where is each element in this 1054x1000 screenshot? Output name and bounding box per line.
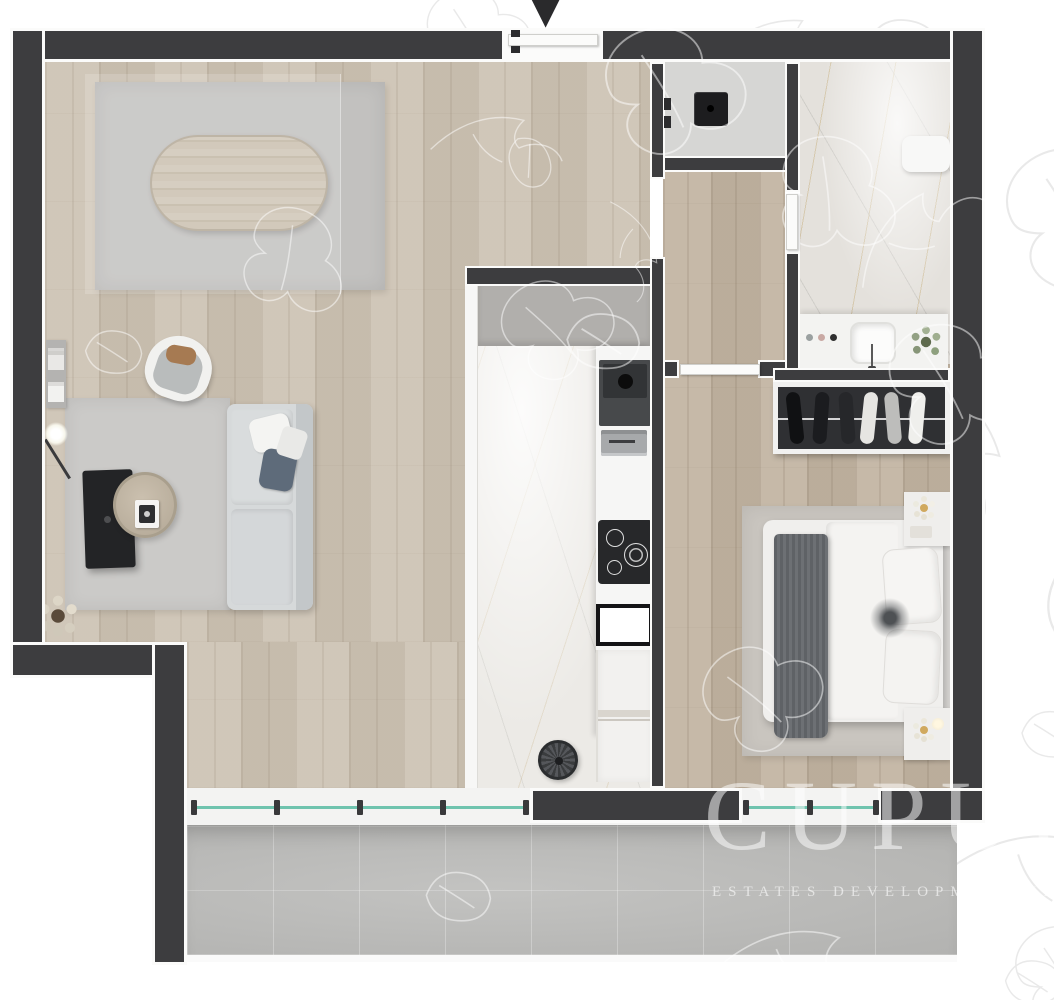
kitchen-partition — [465, 284, 478, 788]
wall-wardrobe-top — [773, 368, 950, 382]
nightstand — [904, 708, 950, 760]
wall-kitchen-top — [465, 266, 657, 286]
bath-plant — [910, 326, 942, 358]
hanging-clothes — [812, 392, 830, 445]
shower-control — [830, 334, 837, 341]
hanging-clothes — [908, 391, 926, 444]
bedroom-door — [680, 364, 760, 375]
hallway-floor — [663, 172, 785, 364]
entry-door — [508, 34, 598, 46]
shower-control — [818, 334, 825, 341]
wardrobe — [773, 382, 950, 454]
floor-plan: ▼ CUPUI ESTATES DEVELOPMENT IN — [0, 0, 1054, 1000]
coffee-machine — [601, 430, 647, 456]
kitchen-upper-cabinets — [478, 286, 650, 346]
wall-utility-bottom — [663, 156, 787, 172]
hanging-clothes — [838, 392, 856, 445]
watermark-subtitle: ESTATES DEVELOPMENT IN — [712, 884, 1054, 901]
wall-left — [10, 28, 45, 678]
nightstand — [904, 492, 950, 546]
bed-pillow — [882, 629, 942, 706]
kitchen-appliance — [596, 604, 653, 646]
watermark-title: CUPUI — [704, 766, 1054, 866]
wall-top-left — [10, 28, 505, 62]
bed-throw-blanket — [774, 534, 828, 738]
wall-core-vertical-lower — [650, 257, 665, 788]
washing-machine — [694, 92, 728, 126]
door-hinge — [664, 116, 671, 128]
wall-right — [950, 28, 985, 823]
door-hinge — [664, 98, 671, 110]
wall-hall-door-stub-left — [663, 360, 679, 378]
door-hinge — [511, 46, 520, 53]
shower-control — [806, 334, 813, 341]
wall-bath-left-lower — [785, 252, 800, 380]
hanging-clothes — [859, 391, 878, 444]
door-hinge — [511, 30, 520, 37]
wall-top-right — [600, 28, 985, 62]
wall-utility-bath-divider — [785, 62, 800, 192]
console-shelf — [46, 340, 66, 408]
towel-shelf — [902, 136, 950, 172]
wall-notch-vertical — [152, 642, 187, 965]
kitchen-stool — [538, 740, 578, 780]
balcony-edge — [187, 955, 957, 962]
kitchen-shelves — [596, 650, 652, 782]
bathroom-door — [786, 194, 798, 250]
kitchen-sink — [599, 360, 651, 426]
living-glass-door — [191, 800, 529, 816]
cooktop — [598, 520, 653, 584]
light-overlay — [85, 74, 341, 294]
sofa — [227, 404, 313, 610]
entry-arrow-icon: ▼ — [531, 0, 560, 32]
hanging-clothes — [785, 391, 804, 444]
bathtub — [850, 322, 896, 364]
coffee-table-tray — [135, 500, 159, 528]
hanging-clothes — [884, 391, 902, 444]
